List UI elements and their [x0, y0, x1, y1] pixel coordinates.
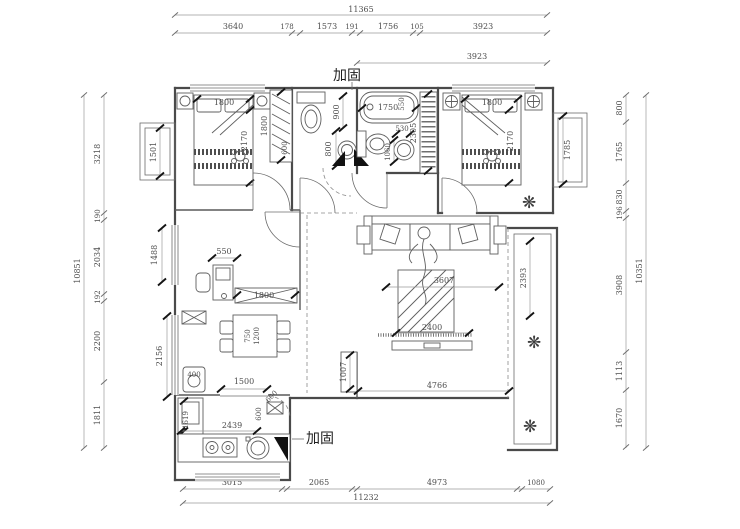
- dim-left-6: 1811: [93, 405, 102, 425]
- side-table: [357, 226, 370, 244]
- dimension-chain-left: 10851 3218 190 2034 192 2200 1811: [73, 92, 107, 450]
- dim-top-2: 178: [280, 23, 293, 31]
- dim-bed2-depth: 2170: [506, 131, 515, 151]
- dim-top-1: 3640: [223, 22, 243, 31]
- desk-chair: [196, 273, 210, 292]
- dim-right-5: 3908: [615, 275, 624, 295]
- sofa: [357, 216, 506, 254]
- floor-plan-page: 11365 3640 178 1573 191 1756 105 3923 39…: [0, 0, 740, 529]
- dim-wardrobe1-length: 1800: [260, 116, 269, 136]
- dim-left-4: 192: [94, 290, 102, 303]
- dim-living-width: 3607: [434, 276, 454, 285]
- study-cabinet: 1800: [233, 288, 299, 303]
- dim-bed1-depth: 2170: [240, 131, 249, 151]
- dim-top-total: 11365: [348, 5, 373, 14]
- plant-icon: ❋: [522, 193, 536, 213]
- dim-top-5: 1756: [378, 22, 398, 31]
- dim-left-total: 10851: [73, 258, 82, 283]
- toilet-hall: [297, 92, 325, 133]
- bedroom2: 1800 2170 ❋: [442, 93, 542, 213]
- tv-console: [392, 341, 472, 350]
- nightstand: [254, 93, 270, 109]
- dim-right-1: 800: [615, 100, 624, 115]
- dimension-chain-bottom: 3015 2065 4973 1080 11232: [180, 478, 553, 506]
- dim-window-study: 1488: [150, 245, 159, 265]
- reinforce-label-top: 加固: [333, 68, 361, 84]
- dim-bath-shelf: 2305: [409, 123, 418, 143]
- dim-hall-basin: 800: [324, 141, 333, 156]
- dim-right-3: 830: [615, 189, 624, 204]
- dim-tub-width: 550: [398, 97, 406, 110]
- door-bedroom1: [253, 173, 290, 210]
- sofa-pillow: [458, 224, 478, 244]
- bay-window-right: 1785: [553, 113, 587, 188]
- dim-top-inner: 3923: [467, 52, 487, 61]
- dim-top-4: 191: [345, 23, 358, 31]
- dim-bed1-width: 1800: [214, 98, 234, 107]
- reinforce-label-bottom: 加固: [306, 431, 334, 447]
- bathroom: 1750 550 530 1060 2305: [352, 91, 437, 209]
- plant-icon: ❋: [523, 417, 537, 437]
- dim-left-1: 3218: [93, 144, 102, 164]
- dim-bay-right: 1785: [563, 140, 572, 160]
- dim-desk: 550: [216, 247, 231, 256]
- window-study: 1488: [150, 225, 179, 286]
- window-bedroom1: [190, 84, 265, 92]
- side-table: [494, 226, 506, 244]
- bedroom1: 1800 2170 1800 600: [177, 89, 292, 211]
- kitchen: 400 1500 1619 2439 600 600: [177, 367, 290, 462]
- dim-left-3: 2034: [93, 247, 102, 267]
- dim-bottom-total: 11232: [353, 493, 378, 502]
- entry-door-arc: [323, 168, 351, 196]
- dim-niche: 400: [187, 371, 200, 379]
- dining: 750 1200: [182, 311, 290, 357]
- dim-bed2-width: 1800: [482, 98, 502, 107]
- dim-living-south: 4766: [427, 381, 447, 390]
- dim-hall-wc: 900: [332, 104, 341, 119]
- dim-kitchen-flue: 600: [255, 407, 263, 420]
- dim-table-length: 1200: [253, 327, 261, 345]
- dim-pier: 1007: [339, 362, 348, 382]
- dim-kitchen-counter: 2439: [222, 421, 242, 430]
- flue-box: [182, 311, 206, 324]
- dim-bay-left: 1501: [149, 142, 158, 162]
- dim-right-2: 1765: [615, 142, 624, 162]
- dim-right-total: 10351: [635, 258, 644, 283]
- plant-icon: ❋: [527, 333, 541, 353]
- dim-top-6: 105: [410, 23, 423, 31]
- dimension-chain-right: 10351 800 1765 830 196 3908 1113 1670: [615, 92, 649, 450]
- dim-bath-basin-width: 1060: [384, 143, 392, 161]
- living-room: 3607 2400 1007 4766: [339, 216, 513, 395]
- dim-study-cabinet: 1800: [254, 291, 274, 300]
- door-hall-south: [300, 178, 335, 213]
- dining-table: 750 1200: [220, 315, 290, 357]
- nightstand: [177, 93, 193, 109]
- dim-kitchen-left: 1619: [182, 411, 190, 429]
- door-study: [265, 212, 300, 247]
- floor-plan-drawing: 11365 3640 178 1573 191 1756 105 3923 39…: [0, 0, 740, 529]
- dim-kitchen-pass: 1500: [234, 377, 254, 386]
- window-bedroom2: [452, 84, 535, 92]
- dim-left-5: 2200: [93, 331, 102, 351]
- desk: [196, 265, 233, 300]
- dim-balcony: 2393: [519, 268, 528, 288]
- dim-table-width: 750: [244, 329, 252, 342]
- dim-bottom-4: 1080: [527, 479, 545, 487]
- dim-top-3: 1573: [317, 22, 337, 31]
- study: 550 1800: [196, 212, 300, 303]
- dimension-chain-top: 11365 3640 178 1573 191 1756 105 3923 39…: [172, 5, 550, 66]
- dim-tv-wall: 2400: [422, 323, 442, 332]
- dim-tub-length: 1750: [378, 103, 398, 112]
- dim-bottom-2: 2065: [309, 478, 329, 487]
- dim-wardrobe1-depth: 600: [281, 141, 289, 154]
- window-kitchen: [195, 473, 280, 481]
- balcony: 2393 ❋ ❋: [519, 238, 541, 438]
- dim-bottom-3: 4973: [427, 478, 447, 487]
- door-bathroom: [352, 173, 387, 208]
- dim-right-6: 1113: [615, 361, 624, 381]
- dim-top-7: 3923: [473, 22, 493, 31]
- bay-window-left: 1501: [140, 123, 175, 180]
- dim-window-kitchen-side: 2156: [155, 346, 164, 366]
- dim-left-2: 190: [94, 209, 102, 222]
- kitchen-left-counter: 1619: [178, 398, 203, 435]
- kitchen-niche-basin: 400: [183, 367, 205, 392]
- window-dining: 2156: [155, 313, 179, 401]
- dim-right-7: 1670: [615, 408, 624, 428]
- dim-right-4: 196: [616, 206, 624, 220]
